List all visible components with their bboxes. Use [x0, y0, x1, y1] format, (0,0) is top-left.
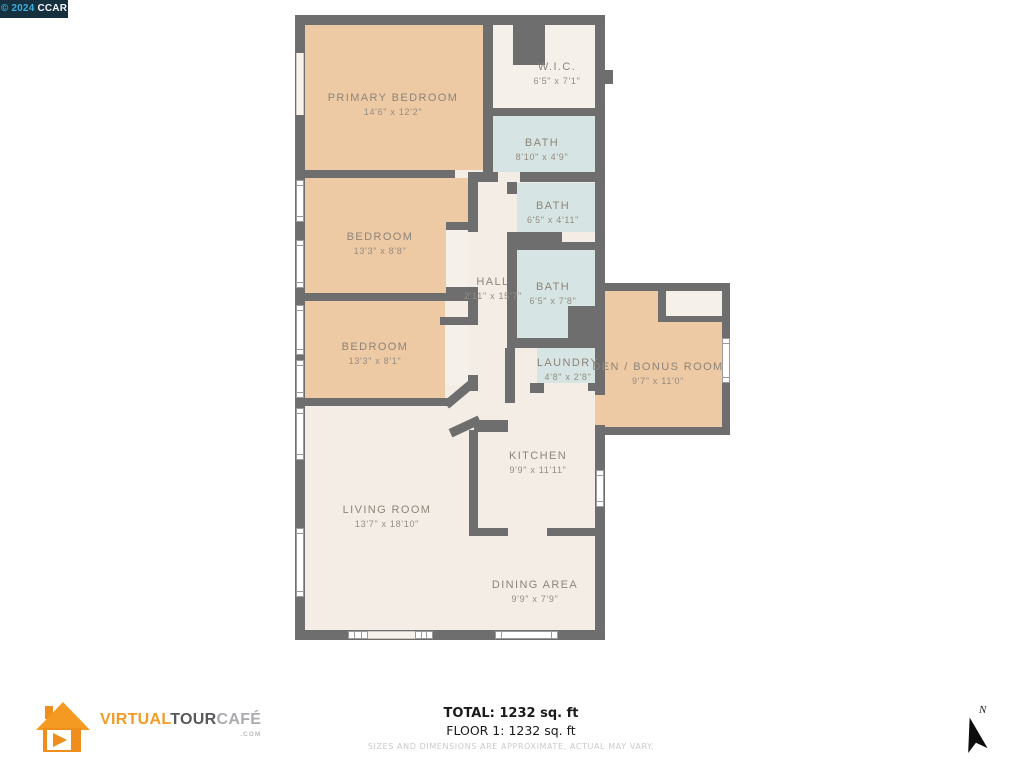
- virtualtourcafe-logo: VIRTUALTOURCAFÉ .COM: [34, 699, 261, 755]
- room-label-bedroom-3: BEDROOM13'3" x 8'1": [342, 341, 409, 366]
- room-label-hall: HALL2'11" x 15'7": [464, 276, 522, 301]
- room-label-bath-1: BATH8'10" x 4'9": [516, 137, 569, 162]
- window: [495, 631, 558, 639]
- room-dims: 2'11" x 15'7": [464, 291, 522, 301]
- logo-cafe: CAFÉ: [217, 711, 262, 728]
- den-doorway: [595, 395, 605, 425]
- logo-tld: .COM: [100, 728, 261, 742]
- wall: [483, 108, 605, 116]
- wall: [469, 430, 478, 533]
- wall: [520, 172, 605, 182]
- room-dims: 6'5" x 7'8": [529, 296, 576, 306]
- badge-year: © 2024: [1, 3, 35, 14]
- wall: [562, 242, 605, 250]
- room-dims: 13'3" x 8'8": [347, 246, 414, 256]
- wall: [507, 232, 562, 250]
- room-den-alcove: [666, 291, 722, 316]
- window: [415, 631, 433, 639]
- wall: [605, 70, 613, 84]
- window: [296, 408, 304, 460]
- room-wic-upper: [545, 25, 595, 65]
- wall: [547, 528, 605, 536]
- north-indicator: N: [955, 704, 1011, 762]
- logo-virtual: VIRTUAL: [100, 711, 170, 728]
- wall: [295, 398, 448, 406]
- room-label-bedroom-2: BEDROOM13'3" x 8'8": [347, 231, 414, 256]
- wall: [440, 317, 468, 325]
- logo-tour: TOUR: [170, 711, 216, 728]
- wall: [295, 170, 455, 178]
- wall: [295, 15, 605, 25]
- room-name: BEDROOM: [347, 231, 414, 243]
- room-label-wic: W.I.C.6'5" x 7'1": [533, 61, 580, 86]
- wall: [483, 25, 493, 178]
- room-wic-entry: [493, 25, 513, 108]
- room-label-bath-3: BATH6'5" x 7'8": [529, 281, 576, 306]
- room-name: BATH: [516, 137, 569, 149]
- house-icon: [34, 699, 96, 755]
- room-name: HALL: [464, 276, 522, 288]
- room-dims: 14'6" x 12'2": [328, 107, 459, 117]
- room-label-primary-bedroom: PRIMARY BEDROOM14'6" x 12'2": [328, 92, 459, 117]
- wall: [507, 338, 605, 348]
- wall: [595, 427, 730, 435]
- wall: [469, 528, 508, 536]
- room-dims: 8'10" x 4'9": [516, 152, 569, 162]
- room-name: DEN / BONUS ROOM: [592, 361, 723, 373]
- room-name: LAUNDRY: [537, 357, 599, 369]
- room-dims: 13'3" x 8'1": [342, 356, 409, 366]
- window: [296, 360, 304, 398]
- room-dims: 9'9" x 7'9": [492, 594, 578, 604]
- room-label-laundry: LAUNDRY4'8" x 2'8": [537, 357, 599, 382]
- north-arrow-icon: [957, 714, 991, 755]
- room-bedroom-3-alcove: [445, 325, 468, 385]
- room-dims: 9'9" x 11'11": [509, 465, 567, 475]
- room-dims: 9'7" x 11'0": [592, 376, 723, 386]
- wall: [658, 316, 722, 322]
- wall: [568, 306, 595, 338]
- window: [296, 180, 304, 222]
- window: [596, 470, 604, 507]
- wall: [507, 182, 517, 194]
- wall: [530, 383, 544, 393]
- window: [296, 240, 304, 288]
- room-name: LIVING ROOM: [343, 504, 432, 516]
- total-area: TOTAL: 1232 sq. ft: [311, 706, 711, 721]
- floorplan-screenshot: © 2024 CCAR: [0, 0, 1024, 768]
- room-label-bath-2: BATH6'5" x 4'11": [527, 200, 579, 225]
- wall: [446, 222, 468, 230]
- wall: [478, 172, 498, 182]
- room-name: PRIMARY BEDROOM: [328, 92, 459, 104]
- wall: [513, 15, 545, 65]
- window: [296, 53, 304, 115]
- room-label-dining-area: DINING AREA9'9" x 7'9": [492, 579, 578, 604]
- room-dims: 13'7" x 18'10": [343, 519, 432, 529]
- room-label-living-room: LIVING ROOM13'7" x 18'10": [343, 504, 432, 529]
- disclaimer-text: SIZES AND DIMENSIONS ARE APPROXIMATE, AC…: [311, 742, 711, 751]
- room-name: BATH: [529, 281, 576, 293]
- wall: [295, 630, 605, 640]
- logo-wordmark: VIRTUALTOURCAFÉ .COM: [100, 713, 261, 742]
- badge-org: CCAR: [37, 3, 67, 14]
- room-dims: 4'8" x 2'8": [537, 372, 599, 382]
- room-name: KITCHEN: [509, 450, 567, 462]
- wall: [468, 172, 478, 232]
- room-name: DINING AREA: [492, 579, 578, 591]
- window: [296, 528, 304, 597]
- room-dims: 6'5" x 4'11": [527, 215, 579, 225]
- room-name: BEDROOM: [342, 341, 409, 353]
- window: [348, 631, 368, 639]
- copyright-badge: © 2024 CCAR: [0, 0, 68, 18]
- room-label-den: DEN / BONUS ROOM9'7" x 11'0": [592, 361, 723, 386]
- wall: [505, 348, 515, 403]
- wall: [468, 375, 478, 391]
- area-totals: TOTAL: 1232 sq. ft FLOOR 1: 1232 sq. ft: [311, 706, 711, 738]
- room-name: BATH: [527, 200, 579, 212]
- room-name: W.I.C.: [533, 61, 580, 73]
- window: [296, 305, 304, 355]
- floor-area: FLOOR 1: 1232 sq. ft: [311, 723, 711, 738]
- room-dims: 6'5" x 7'1": [533, 76, 580, 86]
- patio-opening: [368, 631, 415, 639]
- room-label-kitchen: KITCHEN9'9" x 11'11": [509, 450, 567, 475]
